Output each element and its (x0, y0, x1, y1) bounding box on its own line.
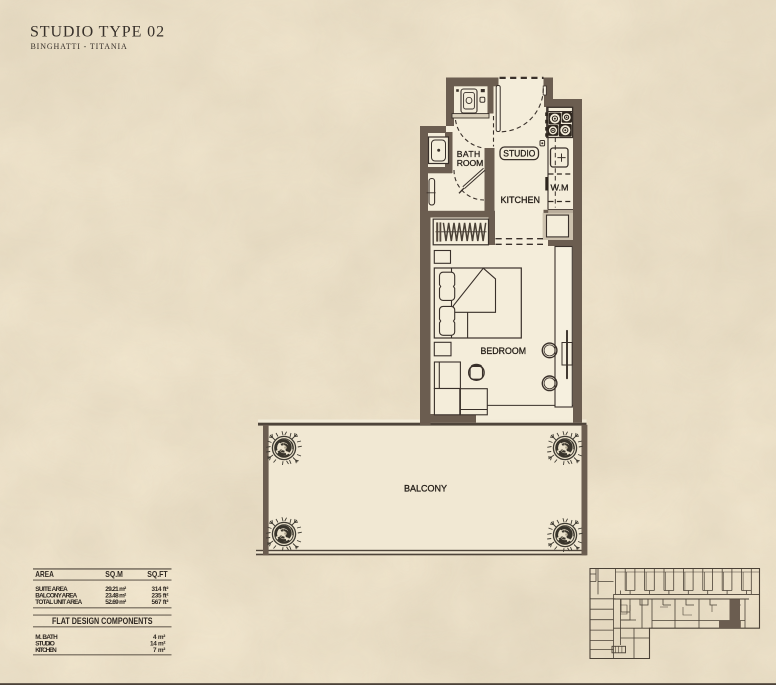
svg-text:FLAT DESIGN COMPONENTS: FLAT DESIGN COMPONENTS (52, 616, 153, 626)
svg-text:SQ.FT: SQ.FT (147, 569, 168, 579)
svg-text:567 ft²: 567 ft² (152, 599, 169, 606)
svg-text:KITCHEN: KITCHEN (35, 647, 57, 654)
svg-text:BINGHATTI - TITANIA: BINGHATTI - TITANIA (31, 42, 128, 51)
svg-text:STUDIO TYPE 02: STUDIO TYPE 02 (30, 23, 165, 40)
svg-text:AREA: AREA (35, 569, 54, 579)
svg-text:STUDIO: STUDIO (503, 149, 535, 159)
svg-text:KITCHEN: KITCHEN (501, 194, 541, 205)
svg-text:BEDROOM: BEDROOM (481, 346, 527, 357)
svg-text:7 m²: 7 m² (153, 647, 165, 654)
svg-text:SQ.M: SQ.M (105, 569, 123, 579)
svg-text:52.69 m²: 52.69 m² (105, 599, 126, 606)
svg-text:W.M: W.M (551, 183, 569, 193)
svg-text:ROOM: ROOM (457, 158, 484, 168)
svg-text:BALCONY: BALCONY (404, 484, 447, 494)
svg-text:TOTAL UNIT AREA: TOTAL UNIT AREA (35, 599, 82, 606)
